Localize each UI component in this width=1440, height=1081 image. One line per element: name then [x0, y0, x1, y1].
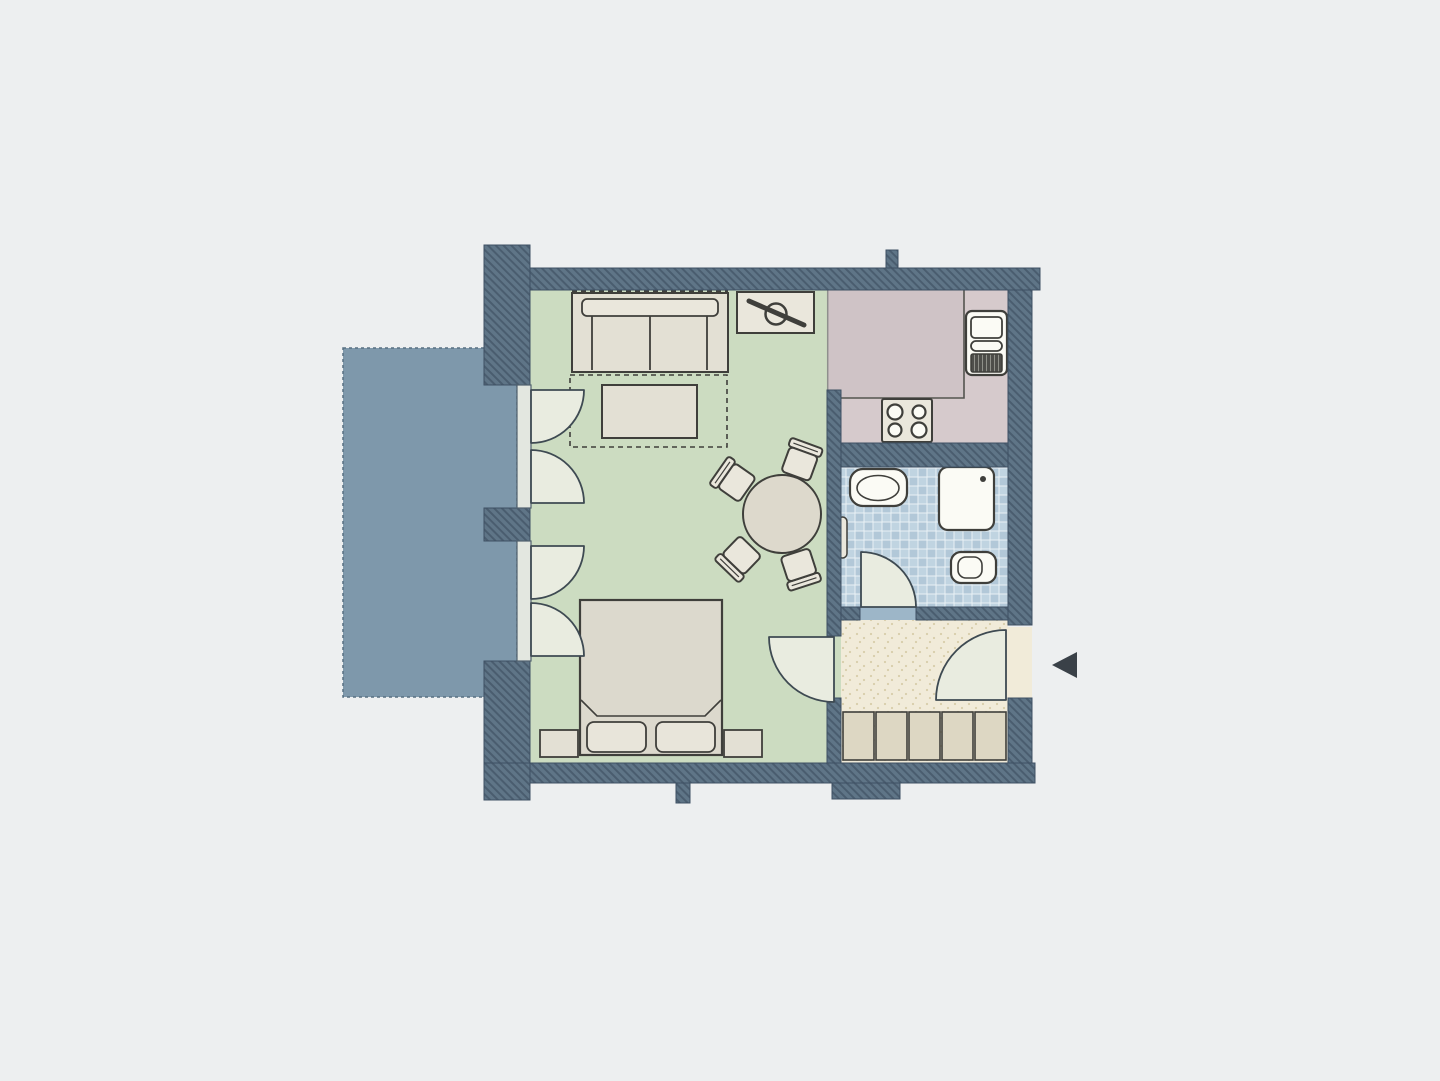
- wall-bottom-stub: [676, 783, 690, 803]
- wardrobe-section: [843, 712, 874, 760]
- tv-stand: [737, 292, 814, 333]
- wall-bottom: [484, 763, 1035, 783]
- wall-kitchen-bathroom: [841, 443, 1008, 467]
- wall-pier-top-left: [484, 245, 530, 385]
- shower-drain: [980, 476, 986, 482]
- wall-pier-left-bottom-ext: [484, 763, 530, 800]
- pillow: [587, 722, 646, 752]
- wall-bottom-step: [832, 783, 900, 799]
- wall-bathroom-bottom-right: [916, 607, 1008, 620]
- pillow: [656, 722, 715, 752]
- wall-interior-upper: [827, 390, 841, 636]
- wardrobe: [843, 712, 1006, 760]
- coffee-table: [602, 385, 697, 438]
- wardrobe-section: [876, 712, 907, 760]
- wall-bathroom-bottom-left: [841, 607, 860, 620]
- double-bed: [580, 600, 722, 755]
- stove-cooktop: [882, 399, 932, 442]
- appliance-grate: [971, 354, 1002, 372]
- wall-top-stub: [886, 250, 898, 268]
- shower: [939, 467, 994, 530]
- entry-threshold: [1008, 627, 1032, 698]
- wardrobe-section: [942, 712, 973, 760]
- nightstand: [724, 730, 762, 757]
- dining-table: [743, 475, 821, 553]
- sofa-back-cushion: [582, 299, 718, 316]
- wall-right-lower: [1008, 698, 1032, 763]
- toilet: [951, 552, 996, 583]
- nightstand: [540, 730, 578, 757]
- wall-pier-left-mid: [484, 508, 530, 541]
- kitchen-floor: [827, 290, 964, 398]
- washbasin: [850, 469, 907, 506]
- bathroom-door-threshold: [860, 607, 916, 620]
- floorplan-drawing: Floor plan: [0, 0, 1440, 1081]
- wall-right-upper: [1008, 290, 1032, 625]
- wall-pier-left-bottom: [484, 661, 530, 763]
- wardrobe-section: [909, 712, 940, 760]
- balcony-door-sill: [517, 541, 531, 661]
- wall-top: [530, 268, 1040, 290]
- balcony-door-sill: [517, 385, 531, 508]
- wall-interior-lower: [827, 698, 841, 763]
- wardrobe-section: [975, 712, 1006, 760]
- floorplan-canvas: Floor plan: [0, 0, 1440, 1081]
- entrance-arrow: [1052, 652, 1077, 678]
- kitchen-sink-unit: [966, 311, 1007, 375]
